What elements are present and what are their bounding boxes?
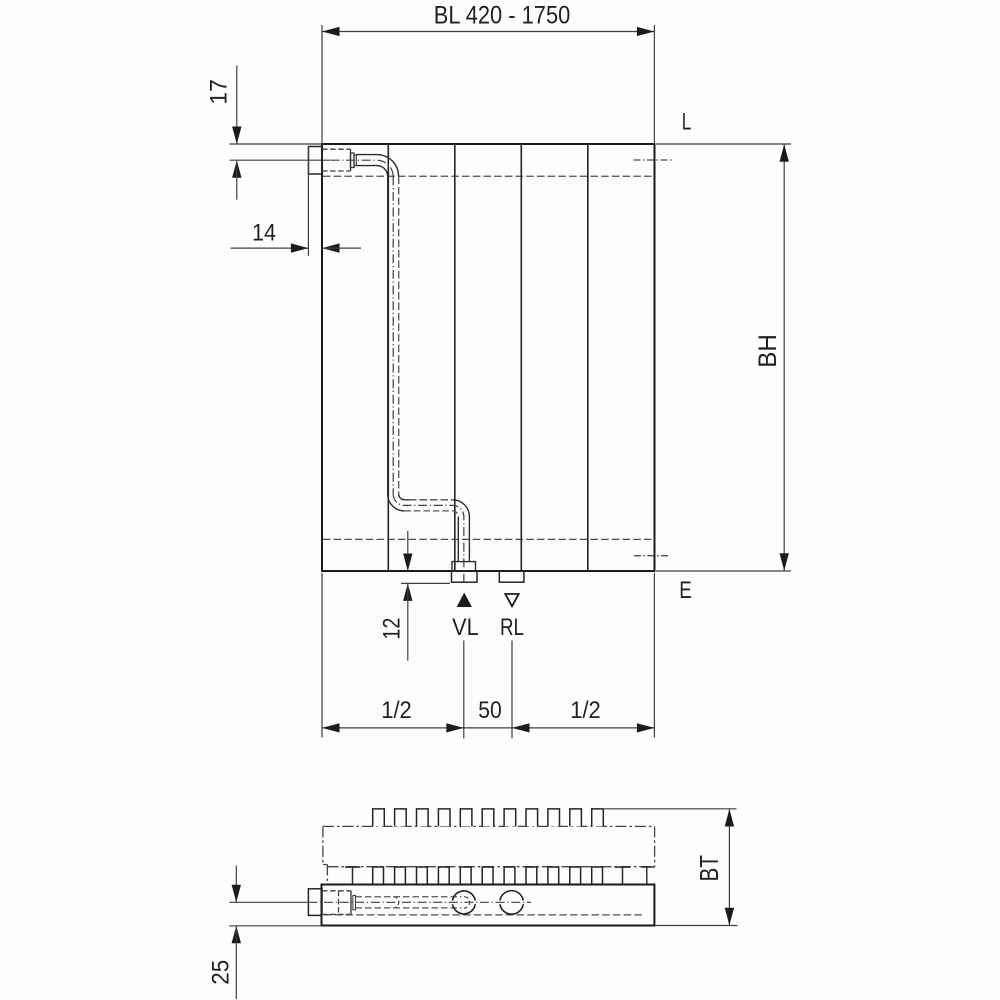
svg-text:50: 50 xyxy=(478,697,502,724)
svg-text:L: L xyxy=(682,109,692,136)
svg-text:E: E xyxy=(679,577,692,604)
svg-text:1/2: 1/2 xyxy=(570,697,601,724)
svg-text:1/2: 1/2 xyxy=(381,697,412,724)
svg-text:BL 420 - 1750: BL 420 - 1750 xyxy=(434,1,571,29)
svg-text:VL: VL xyxy=(452,614,479,641)
svg-text:17: 17 xyxy=(206,79,233,105)
svg-text:12: 12 xyxy=(379,618,406,640)
svg-text:BH: BH xyxy=(755,334,782,368)
svg-text:BT: BT xyxy=(696,855,724,882)
svg-text:14: 14 xyxy=(252,220,276,247)
svg-text:25: 25 xyxy=(208,960,235,985)
svg-text:RL: RL xyxy=(500,614,524,641)
